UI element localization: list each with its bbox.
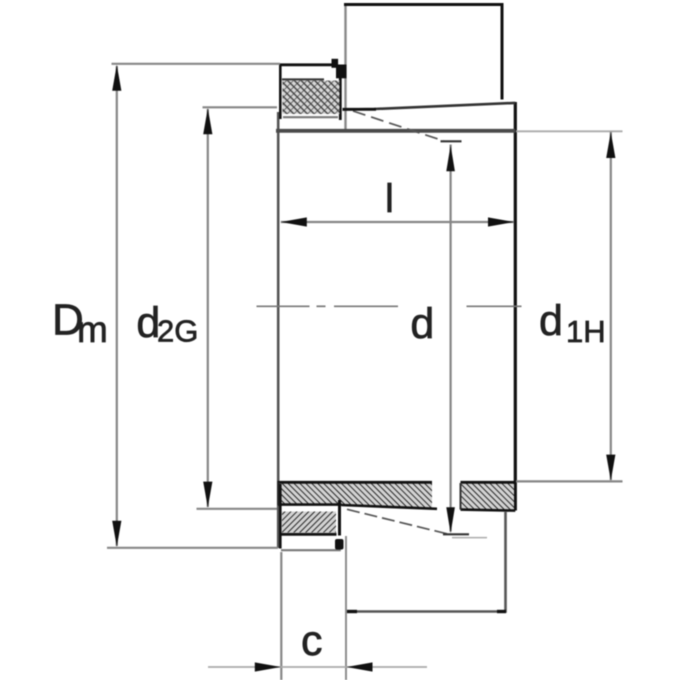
svg-text:l: l bbox=[385, 177, 394, 221]
svg-text:m: m bbox=[77, 309, 108, 350]
svg-text:1H: 1H bbox=[566, 314, 606, 349]
svg-text:c: c bbox=[301, 617, 323, 665]
svg-text:2G: 2G bbox=[157, 314, 198, 349]
svg-text:d: d bbox=[410, 300, 434, 348]
svg-text:d: d bbox=[539, 297, 563, 345]
